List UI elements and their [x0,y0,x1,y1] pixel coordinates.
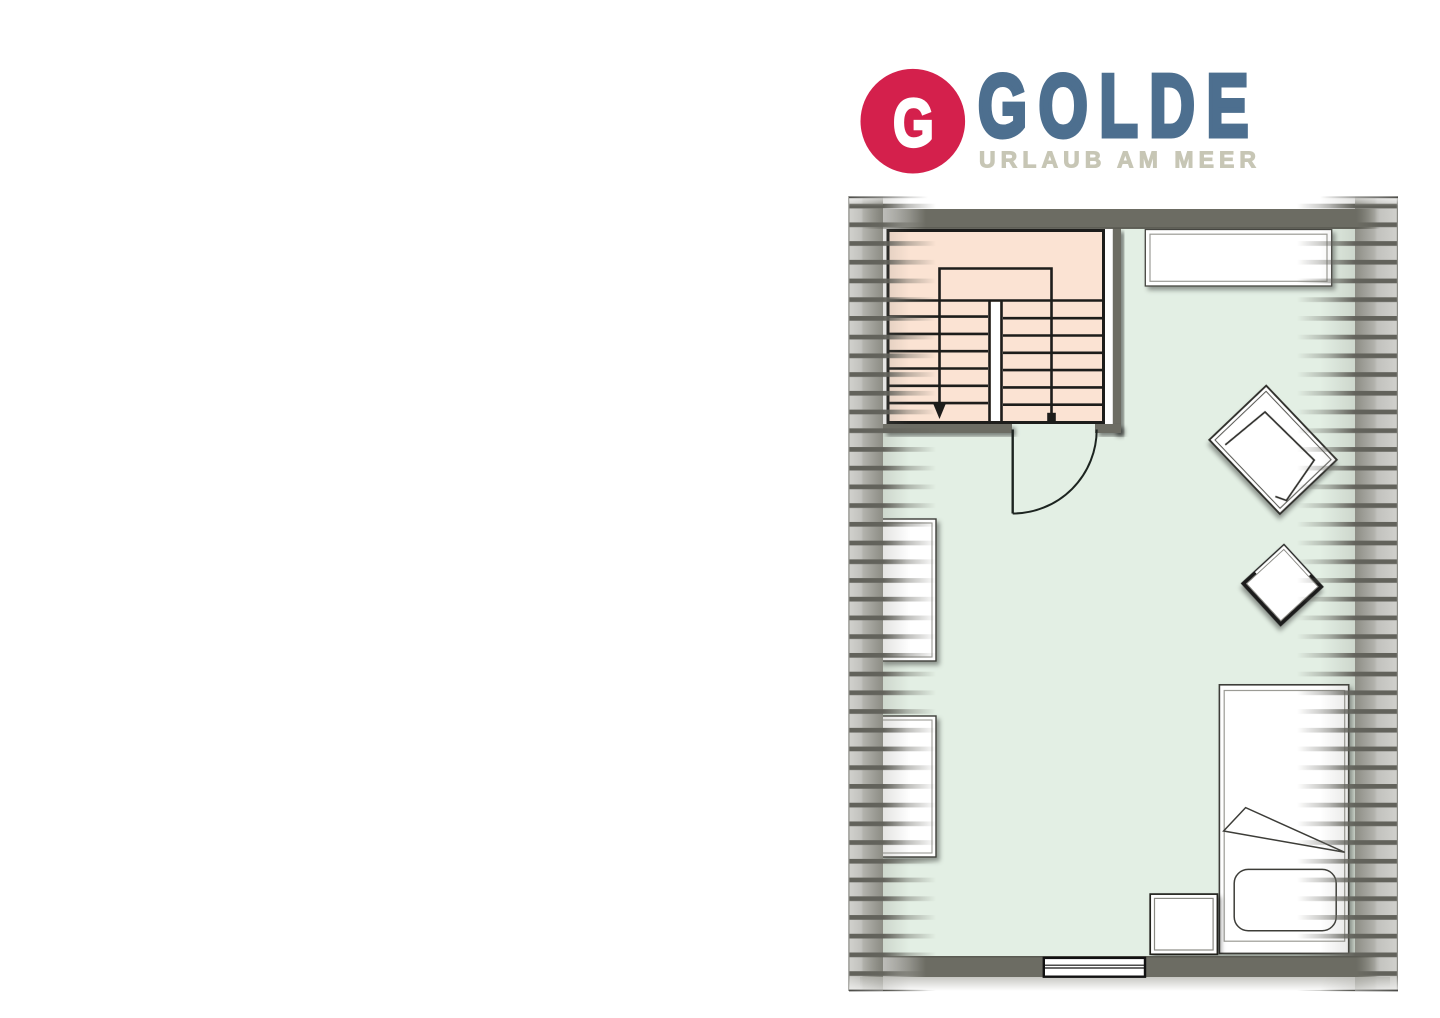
svg-text:GOLDE: GOLDE [978,56,1260,155]
svg-text:G: G [893,86,934,161]
